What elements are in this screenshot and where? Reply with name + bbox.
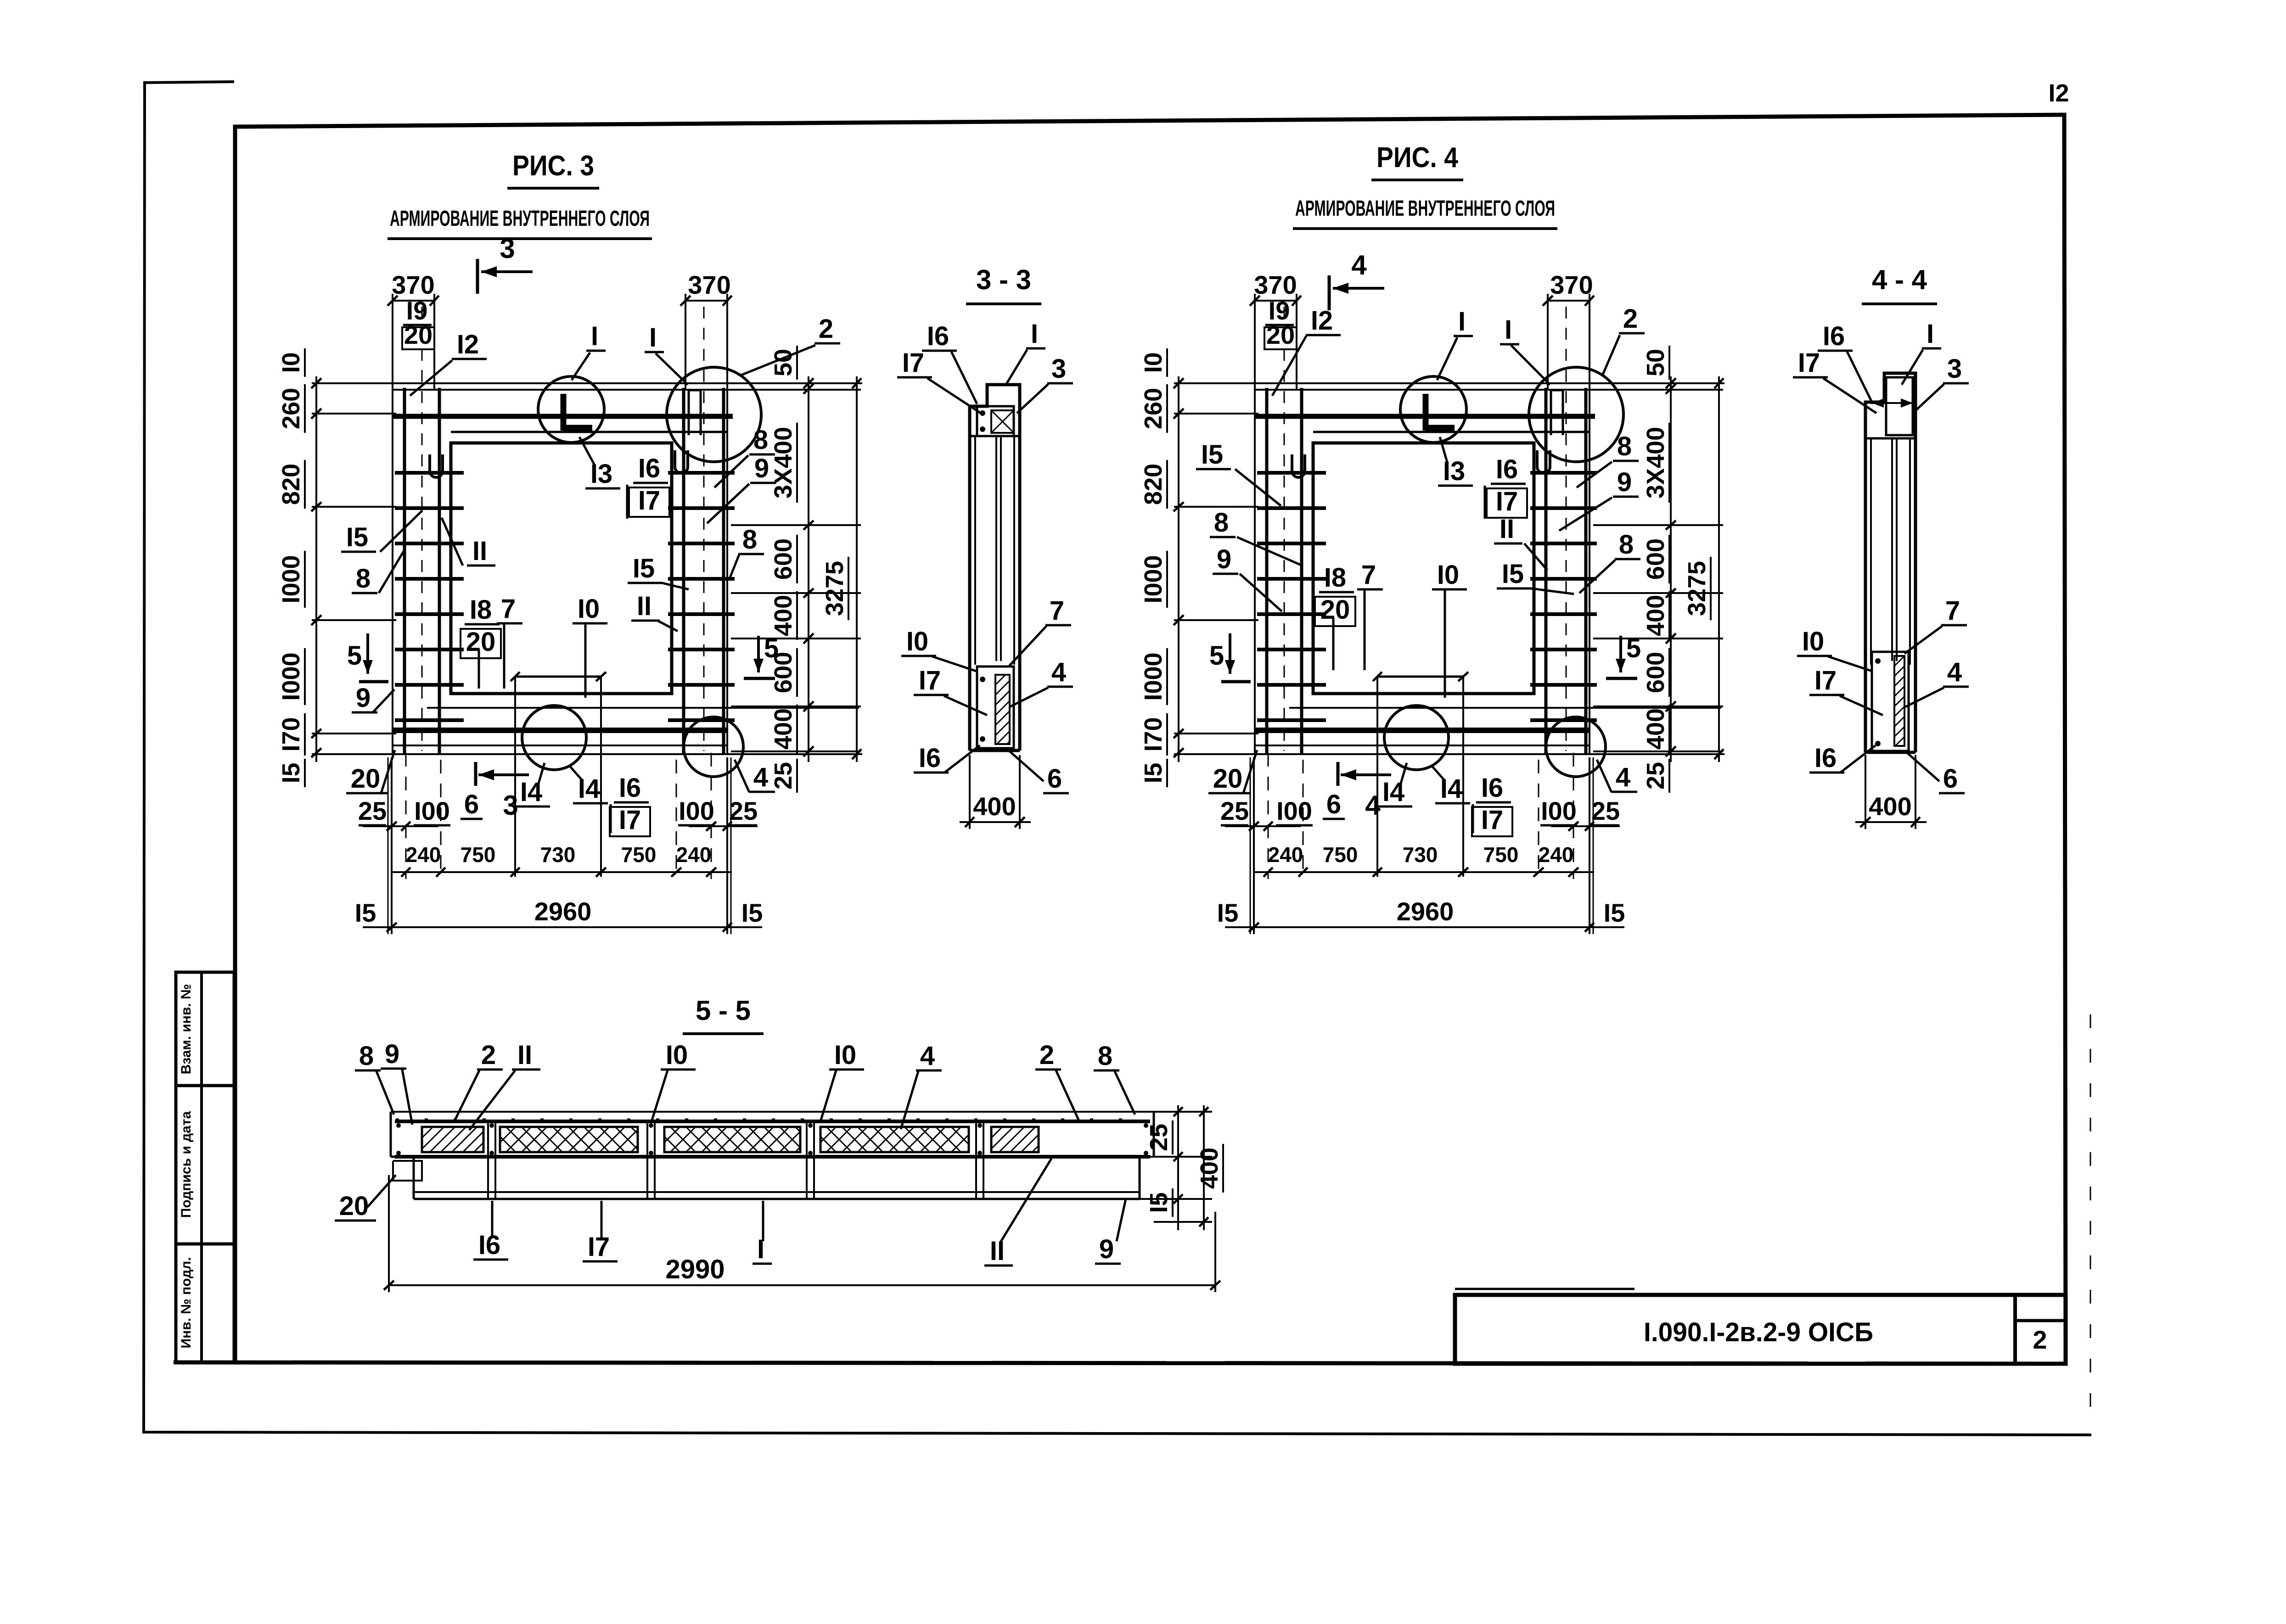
svg-text:750: 750 [1483, 843, 1519, 867]
svg-text:20: 20 [351, 764, 381, 794]
svg-text:I7: I7 [1814, 666, 1837, 695]
svg-text:I7: I7 [902, 348, 924, 378]
svg-text:5: 5 [1626, 633, 1641, 663]
svg-text:I2: I2 [2048, 79, 2069, 107]
svg-text:370: 370 [1254, 270, 1297, 299]
svg-text:4: 4 [1616, 762, 1630, 792]
svg-text:750: 750 [461, 843, 496, 867]
svg-text:I5: I5 [1201, 440, 1223, 470]
svg-text:РИС. 4: РИС. 4 [1376, 142, 1458, 174]
svg-text:400: 400 [769, 595, 797, 636]
svg-text:600: 600 [1642, 538, 1669, 580]
svg-text:2: 2 [819, 314, 833, 344]
svg-text:6: 6 [1943, 764, 1958, 794]
svg-text:240: 240 [1539, 843, 1574, 867]
svg-text:4: 4 [1051, 657, 1066, 687]
svg-text:I7: I7 [638, 486, 660, 515]
svg-text:I5: I5 [1604, 898, 1625, 927]
svg-text:I2: I2 [1311, 306, 1333, 336]
svg-text:I0: I0 [277, 352, 305, 373]
svg-text:3 - 3: 3 - 3 [976, 264, 1031, 295]
svg-text:370: 370 [392, 270, 434, 299]
svg-text:400: 400 [973, 792, 1016, 821]
svg-text:6: 6 [1326, 790, 1341, 819]
svg-text:I7: I7 [1496, 487, 1518, 516]
svg-text:820: 820 [1140, 464, 1167, 505]
svg-text:600: 600 [1642, 652, 1669, 693]
svg-text:I70: I70 [1140, 717, 1167, 751]
svg-text:I0: I0 [906, 627, 928, 656]
svg-text:I: I [591, 321, 598, 351]
svg-text:I00: I00 [1541, 796, 1577, 825]
svg-text:I000: I000 [1140, 652, 1167, 700]
svg-text:6: 6 [1047, 764, 1062, 794]
svg-text:I6: I6 [619, 773, 641, 803]
svg-text:I6: I6 [478, 1230, 500, 1260]
svg-text:750: 750 [621, 843, 657, 867]
svg-text:I8: I8 [470, 595, 492, 625]
svg-text:I7: I7 [588, 1232, 610, 1262]
svg-text:3X400: 3X400 [1642, 427, 1669, 498]
svg-text:730: 730 [540, 843, 576, 867]
svg-text:4: 4 [1351, 250, 1367, 280]
svg-text:I5: I5 [1217, 898, 1239, 927]
svg-text:5 - 5: 5 - 5 [696, 995, 751, 1026]
svg-text:400: 400 [769, 708, 797, 750]
svg-text:20: 20 [339, 1191, 369, 1221]
svg-text:I0: I0 [666, 1040, 688, 1070]
svg-text:25: 25 [358, 796, 387, 825]
svg-text:7: 7 [1050, 596, 1064, 626]
svg-text:I6: I6 [638, 454, 660, 483]
svg-text:I5: I5 [1145, 1192, 1173, 1213]
svg-text:3: 3 [500, 233, 515, 264]
svg-text:I00: I00 [679, 796, 714, 825]
svg-text:9: 9 [1217, 544, 1231, 574]
svg-text:Инв. № подл.: Инв. № подл. [179, 1257, 194, 1348]
svg-text:25: 25 [729, 796, 758, 825]
svg-text:I.090.I-2в.2-9 ОIСБ: I.090.I-2в.2-9 ОIСБ [1644, 1317, 1873, 1347]
svg-text:I: I [1927, 319, 1934, 349]
svg-text:2960: 2960 [534, 897, 592, 926]
svg-text:2: 2 [481, 1040, 496, 1070]
svg-text:50: 50 [1642, 349, 1669, 376]
svg-text:9: 9 [1617, 467, 1632, 497]
svg-text:I: I [1505, 315, 1512, 345]
svg-text:9: 9 [754, 454, 769, 483]
svg-text:20: 20 [1213, 764, 1243, 794]
svg-text:I6: I6 [1496, 454, 1518, 484]
svg-text:3275: 3275 [1683, 561, 1711, 616]
svg-text:I7: I7 [619, 805, 641, 835]
svg-text:260: 260 [1140, 388, 1167, 429]
svg-text:I7: I7 [919, 666, 941, 695]
svg-text:I5: I5 [1502, 559, 1524, 589]
svg-text:I8: I8 [1324, 563, 1346, 593]
svg-text:I0: I0 [578, 594, 600, 624]
svg-text:I00: I00 [1276, 796, 1312, 825]
svg-text:I6: I6 [1481, 773, 1503, 803]
svg-text:600: 600 [769, 538, 797, 580]
svg-text:РИС. 3: РИС. 3 [512, 150, 594, 182]
svg-text:АРМИРОВАНИЕ ВНУТРЕННЕГО СЛОЯ: АРМИРОВАНИЕ ВНУТРЕННЕГО СЛОЯ [390, 207, 650, 231]
svg-text:4: 4 [920, 1041, 935, 1071]
svg-text:4 - 4: 4 - 4 [1872, 264, 1927, 295]
svg-text:II: II [637, 591, 652, 621]
svg-text:25: 25 [1220, 796, 1249, 825]
svg-text:9: 9 [1099, 1234, 1114, 1264]
svg-text:3X400: 3X400 [769, 427, 797, 498]
svg-text:820: 820 [277, 464, 305, 505]
svg-text:I000: I000 [277, 555, 305, 603]
svg-text:2990: 2990 [665, 1254, 725, 1284]
svg-text:3: 3 [1051, 354, 1066, 384]
svg-text:5: 5 [1209, 641, 1224, 671]
svg-text:I5: I5 [633, 554, 655, 583]
svg-text:I000: I000 [277, 652, 305, 700]
svg-text:I6: I6 [1823, 321, 1845, 351]
svg-text:400: 400 [1196, 1148, 1223, 1189]
svg-text:240: 240 [1268, 843, 1303, 867]
svg-text:II: II [517, 1040, 532, 1070]
svg-text:2: 2 [1623, 304, 1638, 334]
svg-text:7: 7 [1945, 596, 1960, 626]
svg-text:2: 2 [2033, 1325, 2047, 1354]
svg-text:II: II [472, 536, 487, 566]
svg-text:I6: I6 [1814, 743, 1837, 773]
svg-text:I6: I6 [927, 321, 949, 351]
svg-text:370: 370 [1550, 270, 1593, 299]
svg-text:8: 8 [1619, 530, 1634, 560]
svg-text:I7: I7 [1481, 805, 1503, 835]
svg-text:9: 9 [385, 1039, 399, 1069]
svg-text:I7: I7 [1798, 348, 1820, 378]
svg-text:400: 400 [1869, 792, 1911, 821]
svg-text:25: 25 [1642, 762, 1669, 790]
svg-text:4: 4 [753, 762, 768, 792]
svg-text:4: 4 [1947, 657, 1962, 687]
svg-text:8: 8 [742, 525, 757, 554]
svg-text:Подпись и дата: Подпись и дата [179, 1111, 194, 1218]
svg-text:730: 730 [1403, 843, 1438, 867]
svg-text:I: I [1031, 319, 1038, 349]
svg-text:20: 20 [404, 320, 432, 349]
svg-text:5: 5 [347, 641, 362, 671]
svg-text:Взам. инв. №: Взам. инв. № [179, 984, 194, 1075]
svg-text:2960: 2960 [1397, 897, 1454, 926]
svg-text:I70: I70 [277, 717, 305, 751]
svg-text:6: 6 [464, 790, 479, 819]
svg-text:I5: I5 [741, 898, 763, 927]
svg-text:400: 400 [1642, 595, 1669, 636]
svg-text:I2: I2 [457, 330, 479, 359]
svg-text:20: 20 [1266, 320, 1295, 349]
svg-text:АРМИРОВАНИЕ ВНУТРЕННЕГО СЛОЯ: АРМИРОВАНИЕ ВНУТРЕННЕГО СЛОЯ [1295, 196, 1555, 221]
svg-text:I0: I0 [834, 1040, 856, 1070]
svg-text:II: II [1500, 514, 1514, 544]
svg-text:5: 5 [764, 633, 779, 663]
svg-text:7: 7 [501, 594, 516, 624]
svg-text:750: 750 [1323, 843, 1358, 867]
svg-text:8: 8 [359, 1041, 374, 1071]
svg-text:240: 240 [406, 843, 441, 867]
svg-text:I0: I0 [1437, 560, 1459, 590]
svg-text:I0: I0 [1802, 627, 1824, 656]
svg-text:240: 240 [676, 843, 712, 867]
svg-text:I00: I00 [414, 796, 450, 825]
svg-text:25: 25 [1145, 1124, 1173, 1151]
svg-text:20: 20 [1320, 595, 1350, 625]
svg-text:I5: I5 [277, 762, 305, 783]
svg-text:8: 8 [1617, 431, 1632, 461]
svg-text:I0: I0 [1140, 352, 1167, 373]
svg-text:9: 9 [356, 683, 371, 713]
svg-text:I6: I6 [919, 743, 941, 773]
svg-text:20: 20 [466, 627, 496, 657]
svg-text:I000: I000 [1140, 555, 1167, 603]
svg-text:I5: I5 [355, 898, 376, 927]
svg-text:400: 400 [1642, 708, 1669, 750]
svg-text:2: 2 [1039, 1040, 1054, 1070]
svg-text:I: I [649, 323, 657, 353]
svg-text:7: 7 [1361, 560, 1376, 590]
svg-text:I: I [1458, 307, 1466, 336]
svg-text:I5: I5 [1140, 762, 1167, 783]
svg-text:260: 260 [277, 388, 305, 429]
svg-text:370: 370 [688, 270, 730, 299]
svg-text:8: 8 [1214, 508, 1229, 538]
svg-text:8: 8 [753, 425, 768, 455]
svg-text:25: 25 [769, 762, 797, 790]
svg-text:3275: 3275 [821, 561, 848, 616]
svg-text:3: 3 [1947, 354, 1962, 384]
svg-text:8: 8 [356, 564, 371, 594]
svg-text:25: 25 [1591, 796, 1620, 825]
svg-text:8: 8 [1098, 1041, 1112, 1071]
svg-text:I5: I5 [346, 522, 368, 552]
